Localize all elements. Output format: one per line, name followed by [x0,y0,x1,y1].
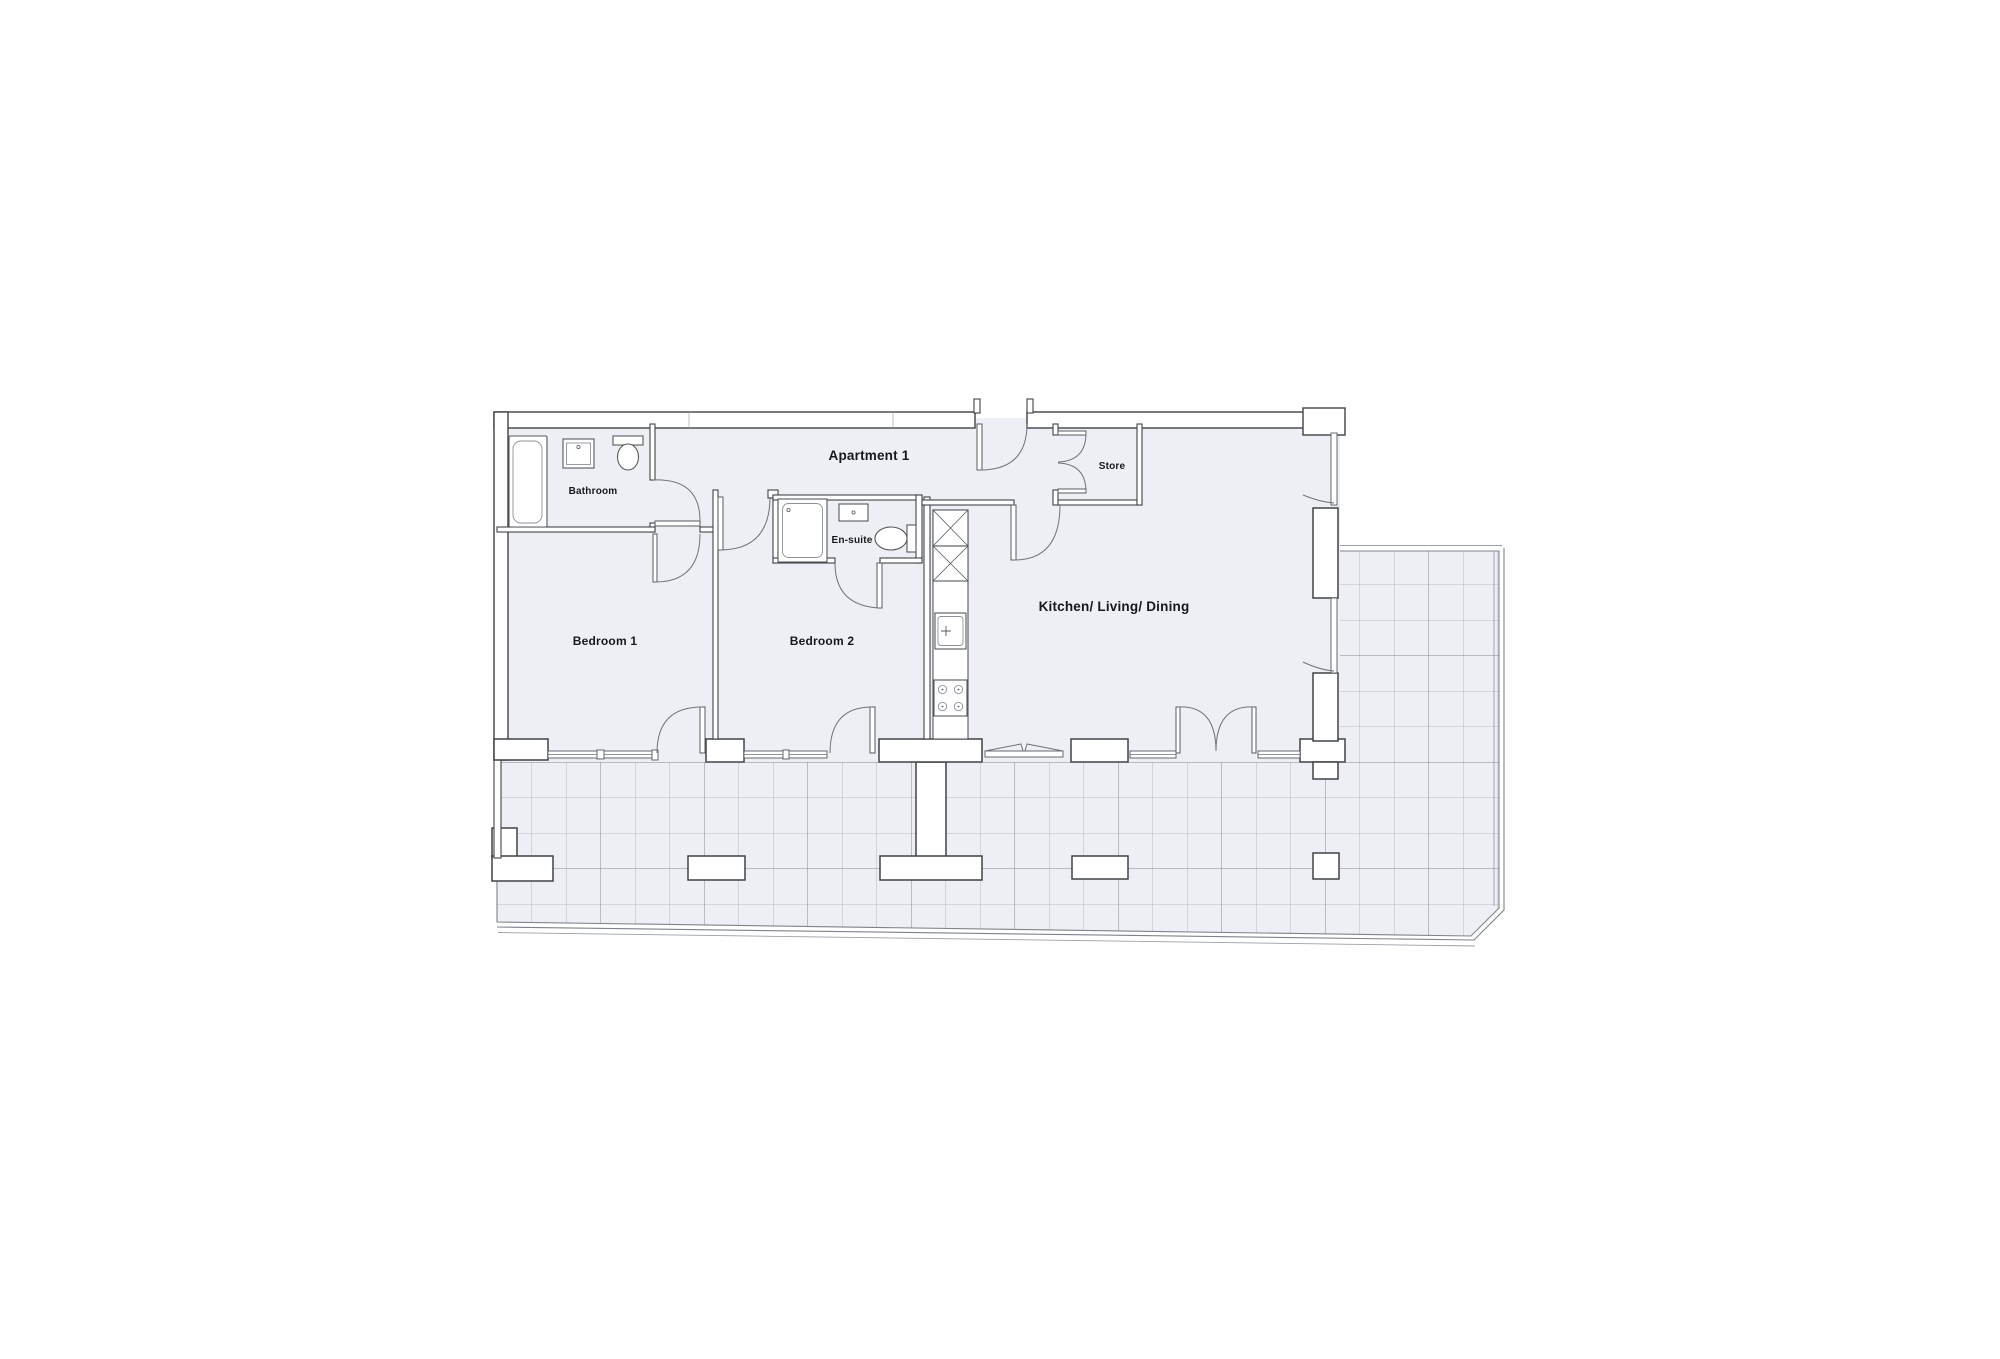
terrace-side-wall-left [494,758,501,858]
entry-jamb [1027,399,1033,413]
room-label-ensuite: En-suite [831,535,872,546]
bedroom1-wall-top [497,527,655,532]
room-label-bedroom2: Bedroom 2 [790,634,855,648]
window-jamb [783,750,789,759]
shower [778,499,827,562]
store-wall-right [1137,424,1142,505]
store-wall-left [1053,424,1058,435]
exterior-wall-top-right [1027,412,1338,428]
right-wall-pier [1313,508,1338,598]
pier [706,739,744,762]
pillar [1313,853,1339,879]
room-label-bedroom1: Bedroom 1 [573,634,638,648]
room-label-bathroom: Bathroom [569,486,618,497]
ensuite-toilet [875,525,916,552]
room-label-hall: Apartment 1 [829,448,910,463]
hall-wall-bottom [922,500,1014,505]
pillar [492,856,553,881]
pillar [1072,856,1128,879]
exterior-wall-top-left [494,412,975,428]
kitchen-units [933,510,968,739]
bathroom-washbasin [563,439,594,468]
pier-corner [1300,739,1345,762]
bathtub [509,436,547,527]
ensuite-wall-left [773,495,778,563]
exterior-wall-left [494,412,508,760]
hob [934,680,967,716]
pillar [688,856,745,880]
floor-plan-page: Apartment 1 Bathroom En-suite Bedroom 1 … [0,0,2000,1359]
pier [494,739,548,760]
glazed-door-right-2 [1331,598,1337,673]
window-jamb [597,750,604,759]
tall-units [933,510,968,581]
floor-plan-svg: Apartment 1 Bathroom En-suite Bedroom 1 … [0,0,2000,1359]
right-wall-pier [1313,673,1338,741]
terrace-divider-wall [916,762,946,857]
bedroom-divider-wall [713,490,718,739]
bedroom2-wall-right [924,497,930,739]
room-label-kitchen: Kitchen/ Living/ Dining [1039,599,1190,614]
room-label-store: Store [1099,461,1126,472]
pillar [880,856,982,880]
pier [879,739,982,762]
corner-block-top-right [1303,408,1345,435]
glazed-door-right-1 [1331,433,1337,505]
bathroom-wall-right [650,424,655,480]
pier [1313,762,1338,779]
ensuite-washbasin [839,504,868,521]
kitchen-sink [935,613,966,649]
store-wall-bottom [1058,500,1142,505]
ensuite-wall-right [916,495,922,563]
entry-jamb [974,399,980,413]
pier [1071,739,1128,762]
